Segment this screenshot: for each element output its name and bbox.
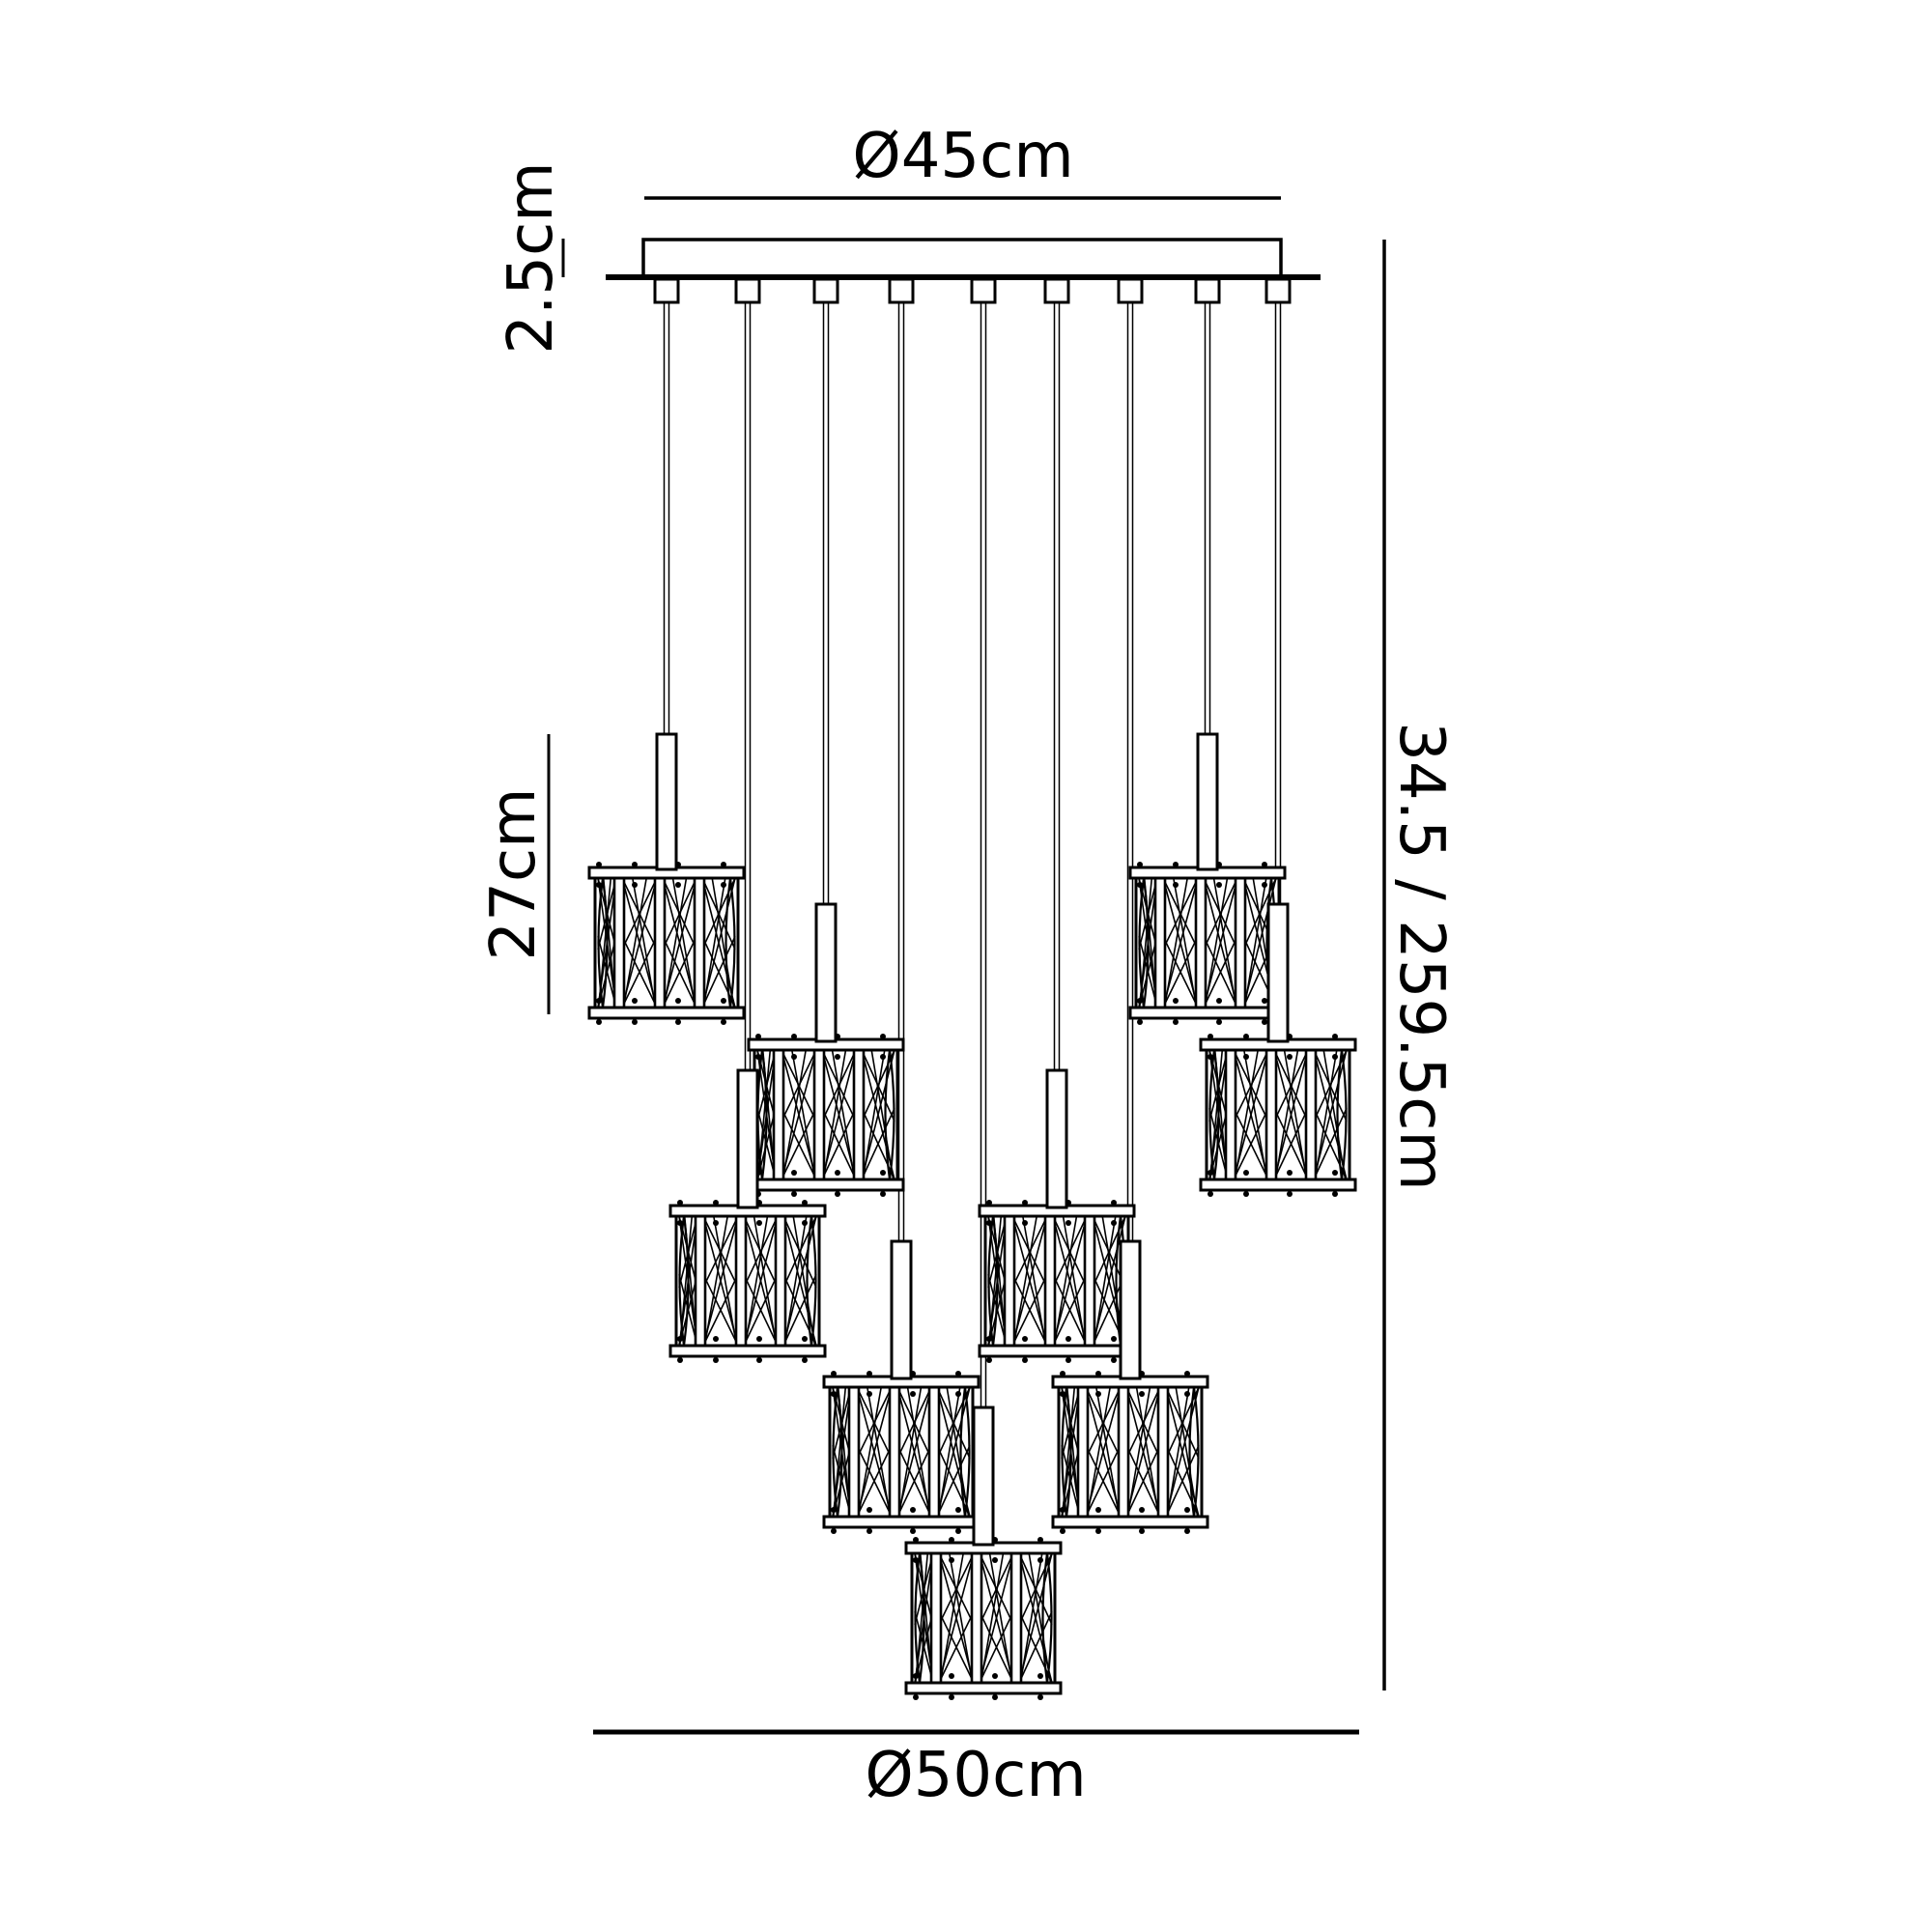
rim-bead xyxy=(677,1200,683,1206)
rim-bead xyxy=(1111,1220,1117,1226)
rim-bead xyxy=(596,998,602,1004)
rim-bead xyxy=(1037,1694,1043,1700)
shade-rib xyxy=(972,1553,981,1683)
pendant-stem xyxy=(1121,1241,1140,1378)
rim-bead xyxy=(1207,1170,1213,1176)
rim-bead xyxy=(867,1371,872,1377)
rim-bead xyxy=(1173,1019,1179,1025)
rim-bead xyxy=(791,1191,797,1197)
rim-bead xyxy=(713,1220,719,1226)
rim-bead xyxy=(1332,1054,1338,1060)
rim-bead xyxy=(755,1054,761,1060)
rim-bead xyxy=(1137,862,1143,867)
rim-bead xyxy=(713,1200,719,1206)
crystal-shade xyxy=(1053,1371,1207,1534)
rim-bead xyxy=(1060,1391,1065,1397)
rim-bead xyxy=(880,1191,886,1197)
rim-bead xyxy=(1095,1371,1101,1377)
shade-bottom-rim xyxy=(1053,1517,1207,1527)
rim-bead xyxy=(677,1357,683,1363)
rim-bead xyxy=(1207,1054,1213,1060)
rim-bead xyxy=(835,1170,840,1176)
crystal-shade xyxy=(906,1537,1061,1700)
crystal-shade xyxy=(980,1200,1134,1363)
rim-bead xyxy=(910,1528,916,1534)
rim-bead xyxy=(1037,1557,1043,1563)
rim-bead xyxy=(721,862,726,867)
crystal-shade xyxy=(749,1034,903,1197)
shade-rib xyxy=(1011,1553,1021,1683)
cord-connectors xyxy=(655,279,1290,302)
crystal-shade xyxy=(670,1200,825,1363)
pendant-stem xyxy=(816,904,836,1041)
rim-bead xyxy=(791,1054,797,1060)
shade-rib xyxy=(1226,1050,1236,1179)
rim-bead xyxy=(1137,882,1143,888)
rim-bead xyxy=(880,1054,886,1060)
rim-bead xyxy=(1111,1200,1117,1206)
rim-bead xyxy=(910,1391,916,1397)
rim-bead xyxy=(880,1170,886,1176)
pendant-stem xyxy=(738,1070,757,1207)
rim-bead xyxy=(1137,998,1143,1004)
rim-bead xyxy=(1262,862,1267,867)
shade-rib xyxy=(774,1050,783,1179)
rim-bead xyxy=(1022,1357,1028,1363)
rim-bead xyxy=(955,1391,961,1397)
shade-bottom-rim xyxy=(906,1683,1061,1693)
rim-bead xyxy=(913,1694,919,1700)
rim-bead xyxy=(1111,1336,1117,1342)
plate-thickness-label: 2.5cm xyxy=(496,161,567,354)
rim-bead xyxy=(867,1528,872,1534)
rim-bead xyxy=(675,998,681,1004)
rim-bead xyxy=(596,862,602,867)
shade-rib xyxy=(1078,1387,1088,1517)
pendant-height-label: 27cm xyxy=(478,788,550,961)
rim-bead xyxy=(1207,1191,1213,1197)
rim-bead xyxy=(1139,1507,1145,1513)
shade-rib xyxy=(854,1050,864,1179)
cord-connector xyxy=(972,279,995,302)
rim-bead xyxy=(1243,1054,1249,1060)
rim-bead xyxy=(802,1336,808,1342)
pendant-stem xyxy=(1268,904,1288,1041)
crystal-shades xyxy=(589,862,1355,1700)
rim-bead xyxy=(1065,1220,1071,1226)
shade-rib xyxy=(1306,1050,1316,1179)
rim-bead xyxy=(949,1557,954,1563)
shade-rib xyxy=(1045,1216,1055,1346)
rim-bead xyxy=(1262,998,1267,1004)
shade-rib xyxy=(1119,1387,1128,1517)
rim-bead xyxy=(910,1507,916,1513)
rim-bead xyxy=(1111,1357,1117,1363)
shade-bottom-rim xyxy=(1201,1179,1355,1190)
cord-connector xyxy=(1196,279,1219,302)
rim-bead xyxy=(1287,1054,1293,1060)
rim-bead xyxy=(1139,1528,1145,1534)
cord-connector xyxy=(814,279,838,302)
total-drop-label: 34.5 / 259.5cm xyxy=(1385,722,1457,1191)
rim-bead xyxy=(992,1673,998,1679)
rim-bead xyxy=(913,1537,919,1543)
rim-bead xyxy=(986,1200,992,1206)
rim-bead xyxy=(802,1200,808,1206)
cord-connector xyxy=(1119,279,1142,302)
rim-bead xyxy=(721,998,726,1004)
shade-rib xyxy=(1266,1050,1276,1179)
spread-diameter-label: Ø50cm xyxy=(865,1740,1086,1811)
shade-rib xyxy=(695,878,704,1008)
rim-bead xyxy=(1060,1528,1065,1534)
plate-diameter-label: Ø45cm xyxy=(852,121,1073,192)
rim-bead xyxy=(756,1336,762,1342)
rim-bead xyxy=(1184,1507,1190,1513)
rim-bead xyxy=(721,882,726,888)
dimension-diagram-canvas: Ø45cm 2.5cm 27cm 34.5 / 259.5cm Ø50cm xyxy=(0,0,1932,1932)
crystal-shade xyxy=(589,862,744,1025)
shade-bottom-rim xyxy=(824,1517,979,1527)
rim-bead xyxy=(992,1557,998,1563)
rim-bead xyxy=(1287,1191,1293,1197)
rim-bead xyxy=(1060,1371,1065,1377)
rim-bead xyxy=(986,1336,992,1342)
rim-bead xyxy=(1173,882,1179,888)
rim-bead xyxy=(632,862,638,867)
rim-bead xyxy=(1095,1528,1101,1534)
shade-bottom-rim xyxy=(749,1179,903,1190)
shade-bottom-rim xyxy=(1130,1008,1285,1018)
rim-bead xyxy=(1262,1019,1267,1025)
rim-bead xyxy=(835,1054,840,1060)
shade-rib xyxy=(849,1387,859,1517)
rim-bead xyxy=(1216,998,1222,1004)
shade-rib xyxy=(814,1050,824,1179)
rim-bead xyxy=(1243,1191,1249,1197)
cord-connector xyxy=(736,279,759,302)
rim-bead xyxy=(1137,1019,1143,1025)
crystal-shade xyxy=(1130,862,1285,1025)
rim-bead xyxy=(831,1391,837,1397)
rim-bead xyxy=(986,1220,992,1226)
rim-bead xyxy=(1332,1170,1338,1176)
rim-bead xyxy=(1173,862,1179,867)
shade-rib xyxy=(736,1216,746,1346)
rim-bead xyxy=(1184,1371,1190,1377)
crystal-shade xyxy=(824,1371,979,1534)
shade-rib xyxy=(1236,878,1245,1008)
pendant-stem xyxy=(892,1241,911,1378)
ceiling-plate xyxy=(643,240,1281,277)
shade-rib xyxy=(614,878,624,1008)
rim-bead xyxy=(1095,1391,1101,1397)
rim-bead xyxy=(802,1357,808,1363)
rim-bead xyxy=(677,1336,683,1342)
shade-bottom-rim xyxy=(589,1008,744,1018)
rim-bead xyxy=(1037,1673,1043,1679)
rim-bead xyxy=(1022,1200,1028,1206)
rim-bead xyxy=(675,882,681,888)
rim-bead xyxy=(713,1336,719,1342)
pendant-stem xyxy=(1047,1070,1066,1207)
shade-rib xyxy=(890,1387,899,1517)
pendant-stem xyxy=(657,734,676,869)
shade-rib xyxy=(1085,1216,1094,1346)
rim-bead xyxy=(1022,1220,1028,1226)
rim-bead xyxy=(791,1034,797,1039)
rim-bead xyxy=(949,1537,954,1543)
rim-bead xyxy=(721,1019,726,1025)
rim-bead xyxy=(955,1528,961,1534)
rim-bead xyxy=(791,1170,797,1176)
shade-rib xyxy=(696,1216,705,1346)
rim-bead xyxy=(1184,1528,1190,1534)
rim-bead xyxy=(1173,998,1179,1004)
rim-bead xyxy=(867,1507,872,1513)
rim-bead xyxy=(1095,1507,1101,1513)
cord-connector xyxy=(1266,279,1290,302)
rim-bead xyxy=(1287,1170,1293,1176)
rim-bead xyxy=(713,1357,719,1363)
rim-bead xyxy=(1243,1170,1249,1176)
shade-rib xyxy=(655,878,665,1008)
rim-bead xyxy=(632,1019,638,1025)
rim-bead xyxy=(802,1220,808,1226)
rim-bead xyxy=(1022,1336,1028,1342)
rim-bead xyxy=(632,882,638,888)
rim-bead xyxy=(756,1357,762,1363)
shade-rib xyxy=(1155,878,1165,1008)
rim-bead xyxy=(1184,1391,1190,1397)
rim-bead xyxy=(1216,882,1222,888)
rim-bead xyxy=(756,1220,762,1226)
rim-bead xyxy=(677,1220,683,1226)
rim-bead xyxy=(913,1673,919,1679)
pendant-stem xyxy=(1198,734,1217,869)
shade-bottom-rim xyxy=(670,1346,825,1356)
shade-rib xyxy=(929,1387,939,1517)
cord-connector xyxy=(655,279,678,302)
rim-bead xyxy=(1262,882,1267,888)
rim-bead xyxy=(913,1557,919,1563)
rim-bead xyxy=(1065,1357,1071,1363)
rim-bead xyxy=(949,1673,954,1679)
rim-bead xyxy=(1332,1034,1338,1039)
rim-bead xyxy=(831,1371,837,1377)
rim-bead xyxy=(986,1357,992,1363)
rim-bead xyxy=(632,998,638,1004)
rim-bead xyxy=(1037,1537,1043,1543)
rim-bead xyxy=(1139,1391,1145,1397)
shade-rib xyxy=(1196,878,1206,1008)
cord-connector xyxy=(890,279,913,302)
rim-bead xyxy=(949,1694,954,1700)
crystal-shade xyxy=(1201,1034,1355,1197)
pendant-light-dimension-diagram: Ø45cm 2.5cm 27cm 34.5 / 259.5cm Ø50cm xyxy=(0,0,1932,1932)
ceiling-plate-assembly xyxy=(606,240,1321,302)
rim-bead xyxy=(1216,1019,1222,1025)
shade-bottom-rim xyxy=(980,1346,1134,1356)
shade-rib xyxy=(931,1553,941,1683)
rim-bead xyxy=(1060,1507,1065,1513)
shade-rib xyxy=(1158,1387,1168,1517)
rim-bead xyxy=(675,1019,681,1025)
rim-bead xyxy=(1332,1191,1338,1197)
rim-bead xyxy=(596,1019,602,1025)
rim-bead xyxy=(596,882,602,888)
rim-bead xyxy=(880,1034,886,1039)
rim-bead xyxy=(955,1371,961,1377)
rim-bead xyxy=(755,1034,761,1039)
rim-bead xyxy=(831,1528,837,1534)
rim-bead xyxy=(1207,1034,1213,1039)
rim-bead xyxy=(835,1191,840,1197)
shade-rib xyxy=(776,1216,785,1346)
cord-connector xyxy=(1045,279,1068,302)
rim-bead xyxy=(867,1391,872,1397)
rim-bead xyxy=(955,1507,961,1513)
rim-bead xyxy=(831,1507,837,1513)
rim-bead xyxy=(1243,1034,1249,1039)
shade-rib xyxy=(1005,1216,1014,1346)
pendant-stem xyxy=(974,1407,993,1545)
rim-bead xyxy=(992,1694,998,1700)
rim-bead xyxy=(1065,1336,1071,1342)
